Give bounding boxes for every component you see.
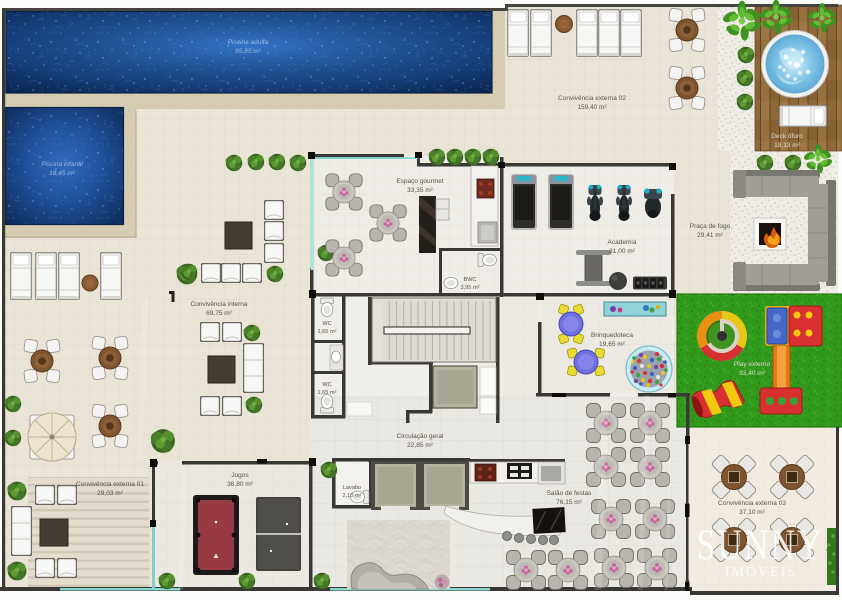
svg-text:SUNNY: SUNNY bbox=[696, 521, 823, 569]
svg-text:19,65 m²: 19,65 m² bbox=[599, 341, 625, 348]
svg-text:Espaço gourmet: Espaço gourmet bbox=[396, 178, 444, 185]
svg-text:Piscina adulta: Piscina adulta bbox=[228, 39, 269, 46]
svg-text:Play externo: Play externo bbox=[734, 361, 771, 368]
svg-text:Brinquedoteca: Brinquedoteca bbox=[591, 332, 633, 339]
svg-text:Deck ôfuro: Deck ôfuro bbox=[771, 133, 803, 140]
svg-text:1,65 m²: 1,65 m² bbox=[318, 390, 337, 396]
svg-text:Convivência externa 03: Convivência externa 03 bbox=[718, 500, 786, 507]
svg-text:BWC: BWC bbox=[463, 277, 476, 283]
svg-text:22,85 m²: 22,85 m² bbox=[407, 442, 433, 449]
svg-text:1,65 m²: 1,65 m² bbox=[318, 329, 337, 335]
svg-text:Convivência externa 01: Convivência externa 01 bbox=[76, 481, 144, 488]
svg-text:95,85 m²: 95,85 m² bbox=[235, 48, 261, 55]
svg-text:WC: WC bbox=[322, 382, 331, 388]
svg-text:18,45 m²: 18,45 m² bbox=[49, 170, 75, 177]
svg-text:Circulação geral: Circulação geral bbox=[397, 433, 445, 440]
svg-text:29,41 m²: 29,41 m² bbox=[697, 232, 723, 239]
svg-text:29,03 m²: 29,03 m² bbox=[97, 490, 123, 497]
svg-text:2,10 m²: 2,10 m² bbox=[343, 493, 362, 499]
svg-text:Convivência interna: Convivência interna bbox=[190, 301, 247, 308]
svg-text:69,75 m²: 69,75 m² bbox=[206, 310, 232, 317]
svg-text:Lavabo: Lavabo bbox=[343, 485, 361, 491]
svg-text:Academia: Academia bbox=[608, 239, 637, 246]
svg-text:33,40 m²: 33,40 m² bbox=[739, 370, 765, 377]
svg-text:3,95 m²: 3,95 m² bbox=[461, 285, 480, 291]
svg-text:76,15 m²: 76,15 m² bbox=[556, 499, 582, 506]
svg-text:Praça de fogo: Praça de fogo bbox=[690, 223, 731, 230]
svg-text:Jogos: Jogos bbox=[231, 472, 249, 479]
svg-text:31,00 m²: 31,00 m² bbox=[609, 248, 635, 255]
svg-text:159,40 m²: 159,40 m² bbox=[577, 104, 607, 111]
svg-text:Salão de festas: Salão de festas bbox=[547, 490, 593, 497]
svg-text:WC: WC bbox=[322, 321, 331, 327]
svg-text:18,13 m²: 18,13 m² bbox=[774, 142, 800, 149]
svg-text:36,80 m²: 36,80 m² bbox=[227, 481, 253, 488]
svg-text:33,35 m²: 33,35 m² bbox=[407, 187, 433, 194]
svg-text:Piscina infantil: Piscina infantil bbox=[41, 161, 83, 168]
svg-text:Convivência externa 02: Convivência externa 02 bbox=[558, 95, 626, 102]
svg-text:IMÓVEIS: IMÓVEIS bbox=[725, 563, 797, 580]
svg-text:37,10 m²: 37,10 m² bbox=[739, 509, 765, 516]
